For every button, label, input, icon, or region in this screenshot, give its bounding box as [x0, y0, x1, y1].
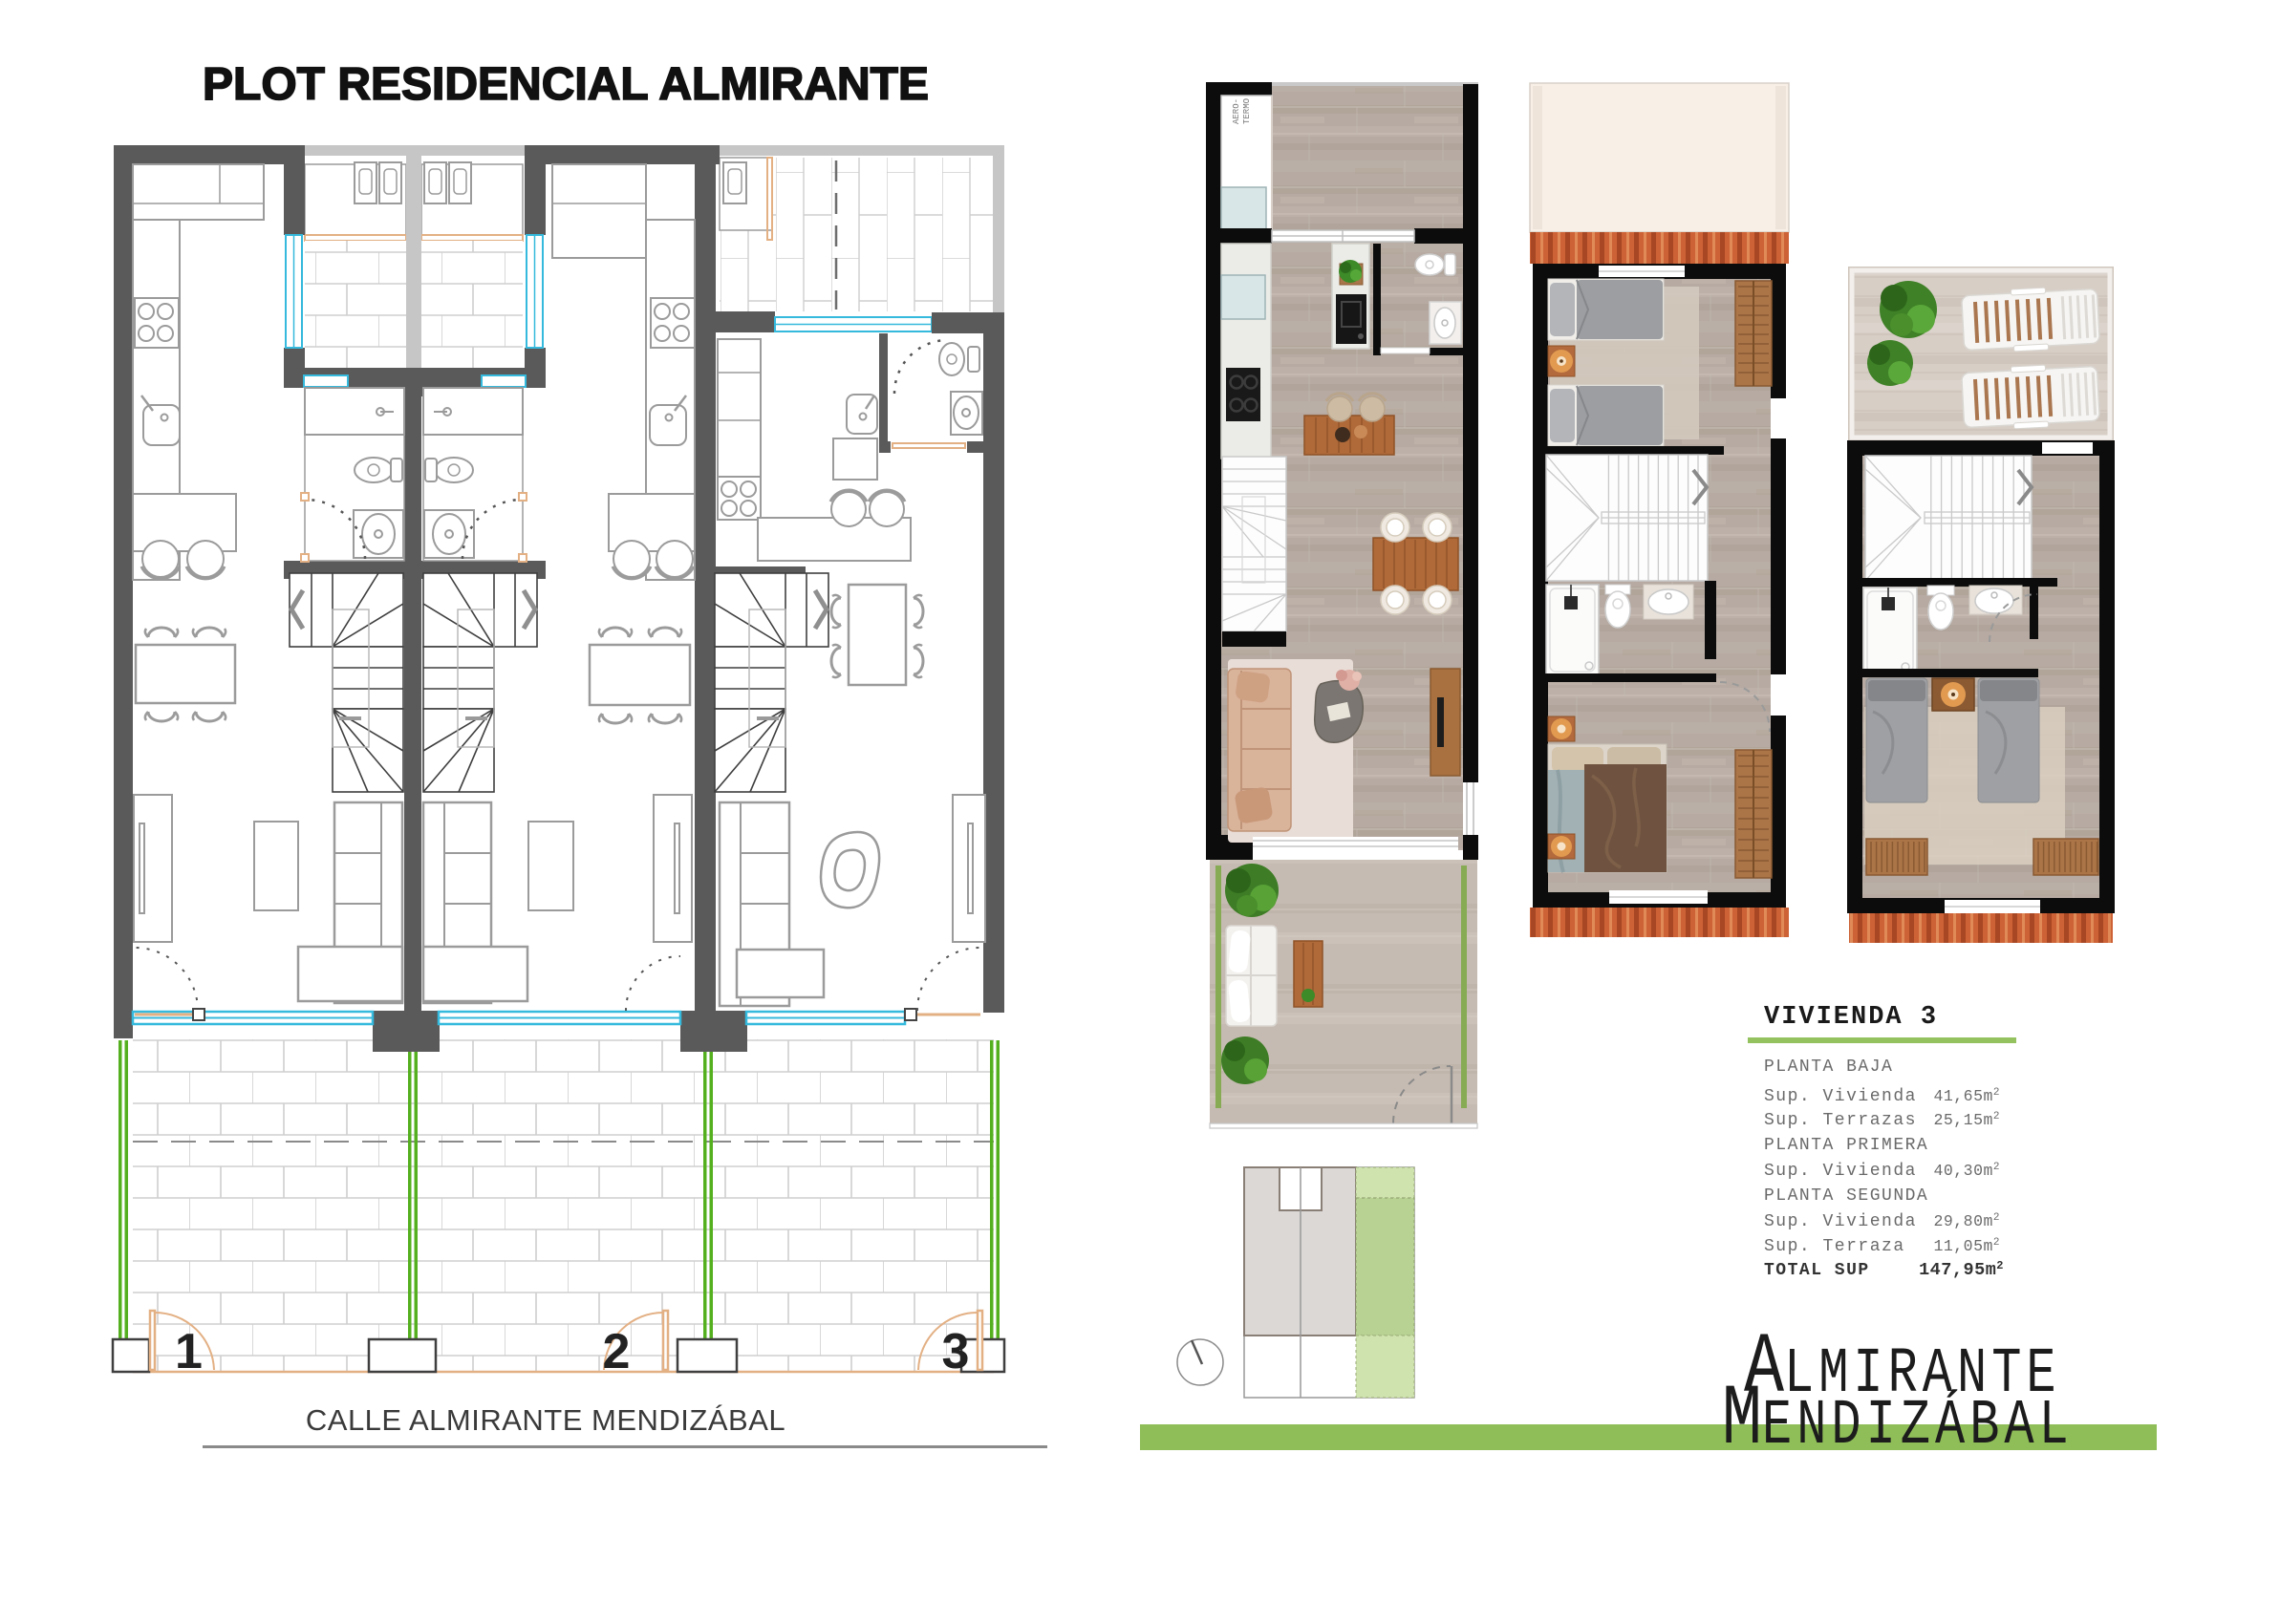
- svg-text:2: 2: [603, 1324, 631, 1379]
- svg-text:PLANTA BAJA: PLANTA BAJA: [1764, 1058, 1893, 1077]
- svg-text:CALLE ALMIRANTE MENDIZÁBAL: CALLE ALMIRANTE MENDIZÁBAL: [306, 1403, 785, 1437]
- svg-text:Sup. Vivienda: Sup. Vivienda: [1764, 1087, 1917, 1106]
- svg-text:VIVIENDA 3: VIVIENDA 3: [1764, 1003, 1938, 1032]
- svg-text:25,15m2: 25,15m2: [1933, 1111, 2000, 1129]
- svg-text:PLOT RESIDENCIAL ALMIRANTE: PLOT RESIDENCIAL ALMIRANTE: [203, 59, 929, 110]
- svg-text:Sup. Vivienda: Sup. Vivienda: [1764, 1162, 1917, 1181]
- svg-text:Sup. Terrazas: Sup. Terrazas: [1764, 1111, 1917, 1130]
- svg-text:1: 1: [175, 1324, 203, 1379]
- svg-text:TOTAL SUP: TOTAL SUP: [1764, 1261, 1870, 1280]
- svg-text:TERMO: TERMO: [1242, 98, 1252, 124]
- svg-text:Sup. Vivienda: Sup. Vivienda: [1764, 1212, 1917, 1231]
- svg-text:11,05m2: 11,05m2: [1933, 1237, 2000, 1255]
- svg-text:147,95m2: 147,95m2: [1919, 1259, 2004, 1280]
- svg-text:29,80m2: 29,80m2: [1933, 1212, 2000, 1230]
- svg-text:AERO-: AERO-: [1232, 98, 1241, 124]
- svg-text:40,30m2: 40,30m2: [1933, 1162, 2000, 1180]
- svg-text:Sup. Terraza: Sup. Terraza: [1764, 1237, 1905, 1256]
- svg-text:3: 3: [942, 1324, 970, 1379]
- svg-text:PLANTA PRIMERA: PLANTA PRIMERA: [1764, 1136, 1928, 1155]
- svg-text:PLANTA SEGUNDA: PLANTA SEGUNDA: [1764, 1186, 1928, 1206]
- svg-text:41,65m2: 41,65m2: [1933, 1087, 2000, 1105]
